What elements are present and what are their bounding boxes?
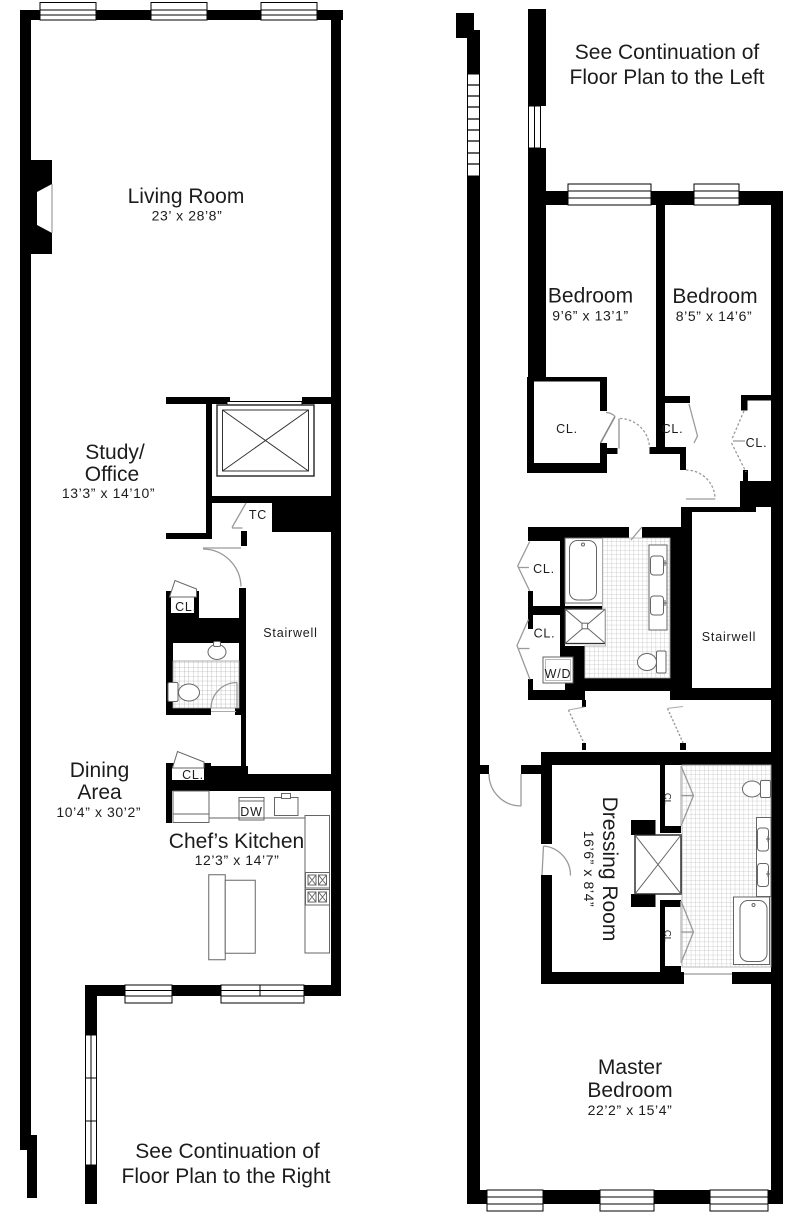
svg-text:13’3” x 14’10”: 13’3” x 14’10” [62, 485, 155, 501]
svg-text:See Continuation of: See Continuation of [575, 41, 760, 64]
svg-text:CL.: CL. [175, 600, 197, 614]
svg-text:23’ x 28’8”: 23’ x 28’8” [152, 208, 223, 224]
svg-text:Bedroom: Bedroom [548, 285, 633, 308]
svg-text:Study/: Study/ [85, 441, 145, 464]
svg-text:Living Room: Living Room [128, 185, 245, 208]
svg-text:Bedroom: Bedroom [587, 1079, 672, 1102]
svg-text:CL.: CL. [182, 768, 204, 782]
svg-text:Office: Office [85, 463, 139, 486]
svg-text:Floor Plan to the Right: Floor Plan to the Right [122, 1165, 331, 1188]
svg-text:CL: CL [662, 930, 673, 942]
svg-text:Master: Master [598, 1056, 662, 1079]
svg-text:Floor Plan to the Left: Floor Plan to the Left [570, 66, 765, 89]
svg-text:10’4” x 30’2”: 10’4” x 30’2” [56, 804, 141, 820]
svg-text:8’5” x 14’6”: 8’5” x 14’6” [676, 308, 752, 324]
svg-text:See Continuation of: See Continuation of [135, 1140, 320, 1163]
svg-text:Stairwell: Stairwell [702, 630, 756, 644]
svg-text:CL.: CL. [662, 422, 684, 436]
svg-text:Dressing Room: Dressing Room [598, 797, 621, 942]
svg-text:12’3” x 14’7”: 12’3” x 14’7” [195, 852, 280, 868]
svg-text:DW: DW [240, 805, 262, 819]
svg-text:Dining: Dining [70, 759, 130, 782]
svg-text:CL.: CL. [746, 436, 768, 450]
svg-text:16’6” x 8’4”: 16’6” x 8’4” [581, 831, 597, 907]
svg-text:Chef’s Kitchen: Chef’s Kitchen [169, 830, 304, 853]
svg-text:22’2” x 15’4”: 22’2” x 15’4” [588, 1102, 673, 1118]
svg-text:W/D: W/D [545, 667, 572, 681]
svg-text:CL: CL [662, 793, 673, 805]
svg-text:Area: Area [77, 781, 122, 804]
svg-text:9’6” x 13’1”: 9’6” x 13’1” [552, 308, 628, 324]
svg-text:Bedroom: Bedroom [672, 285, 757, 308]
svg-text:Stairwell: Stairwell [263, 626, 317, 640]
svg-text:CL.: CL. [556, 422, 578, 436]
svg-text:CL.: CL. [533, 562, 555, 576]
svg-text:TC: TC [249, 508, 267, 522]
svg-text:CL.: CL. [534, 627, 556, 641]
